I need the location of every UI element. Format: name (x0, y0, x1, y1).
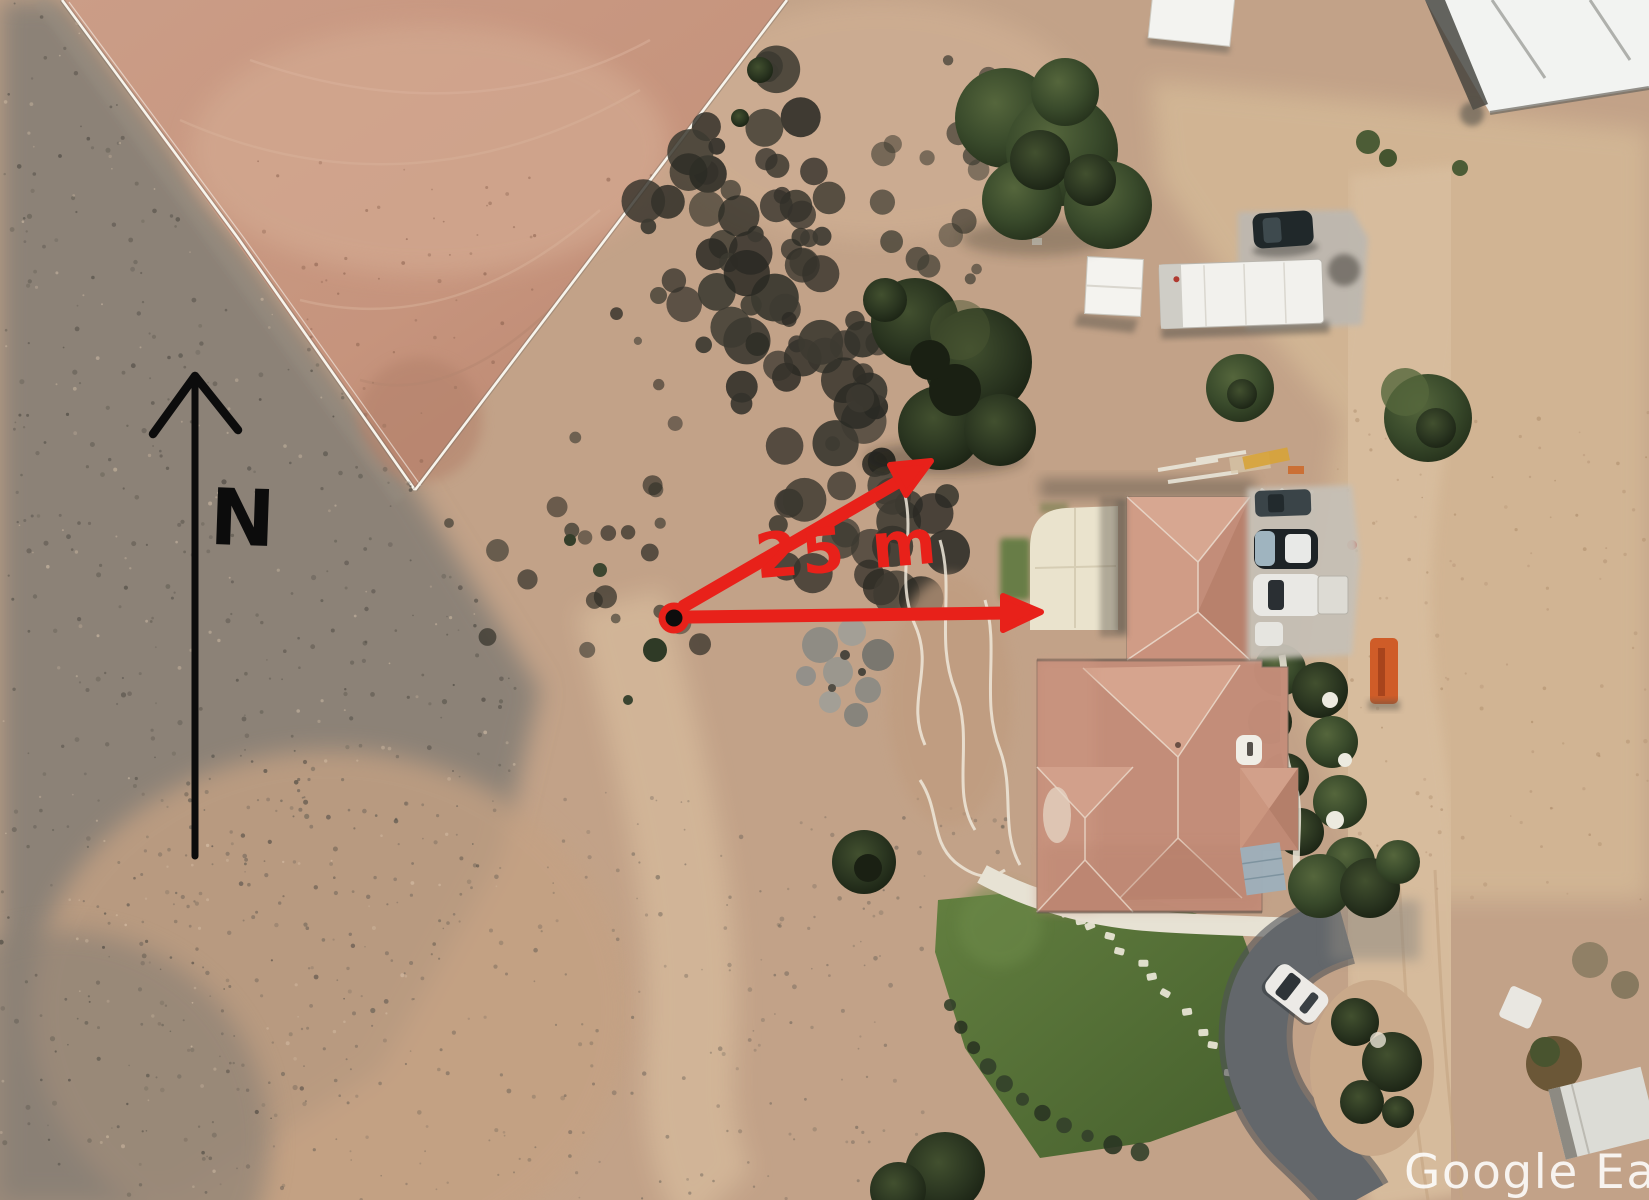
suv-dark (1250, 210, 1319, 259)
satellite-photo: N 25 m Google Ea (0, 0, 1649, 1200)
shed-top (1147, 0, 1235, 53)
pickup-white (1253, 574, 1348, 616)
roof-dome (1236, 735, 1262, 765)
semi-trailer (1159, 259, 1329, 339)
patio-cover (1240, 842, 1286, 895)
driveway-island (1310, 980, 1434, 1156)
orange-equipment (1368, 638, 1400, 710)
parking-pad (1247, 485, 1360, 660)
google-earth-watermark: Google Ea (1404, 1145, 1649, 1200)
car-small-white (1255, 622, 1283, 646)
screenshot-stage: N 25 m Google Ea (0, 0, 1649, 1200)
north-label: N (208, 473, 276, 565)
grass-strip (1000, 538, 1030, 600)
arrow-east-shaft (690, 613, 1008, 617)
car-blue (1254, 529, 1318, 569)
pickup-dark (1255, 489, 1312, 517)
